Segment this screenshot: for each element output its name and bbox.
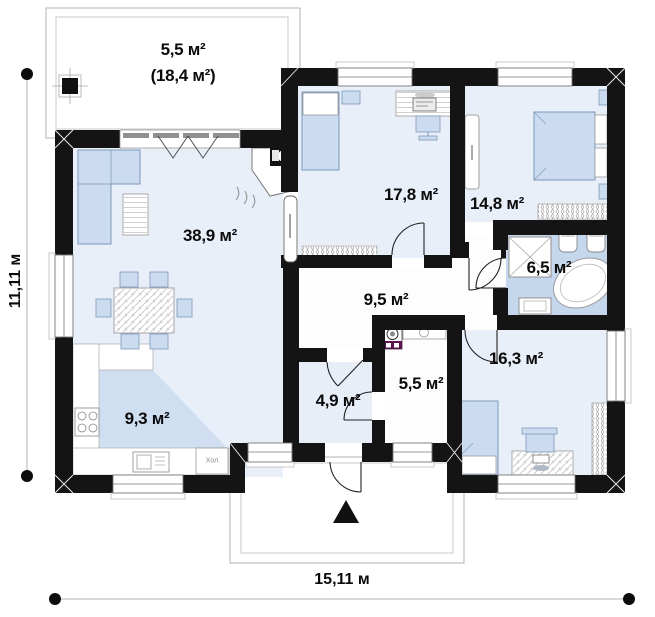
laptop-icon (533, 455, 549, 471)
room-label-teen-room: 16,3 м² (489, 349, 543, 369)
nightstand (342, 91, 360, 104)
living-hall-open-door (284, 196, 297, 262)
room-label-bath: 6,5 м² (527, 258, 572, 278)
room-label-office: 17,8 м² (384, 185, 438, 205)
room-label-terrace: 5,5 м² (161, 40, 206, 60)
room-label-terrace-total: (18,4 м²) (151, 66, 216, 86)
dimension-height: 11,11 м (7, 254, 25, 309)
printer-icon (413, 92, 436, 111)
room-label-living: 38,9 м² (183, 226, 237, 246)
room-label-hall: 9,5 м² (364, 290, 409, 310)
room-label-vestibule: 4,9 м² (316, 391, 361, 411)
floor-plan-drawing (0, 0, 655, 617)
dimension-width: 15,11 м (314, 571, 369, 589)
floor-plan: 5,5 м² (18,4 м²) 38,9 м² 17,8 м² 14,8 м²… (0, 0, 655, 617)
desk-chair (526, 433, 554, 452)
kitchen-sink-icon (133, 452, 169, 472)
stove-icon (75, 408, 99, 436)
room-label-kitchen: 9,3 м² (125, 409, 170, 429)
double-bed (534, 112, 595, 180)
desk-chair (416, 116, 440, 132)
room-label-utility: 5,5 м² (399, 374, 444, 394)
fridge-label: Хол (206, 458, 218, 465)
room-label-bedroom: 14,8 м² (470, 194, 524, 214)
